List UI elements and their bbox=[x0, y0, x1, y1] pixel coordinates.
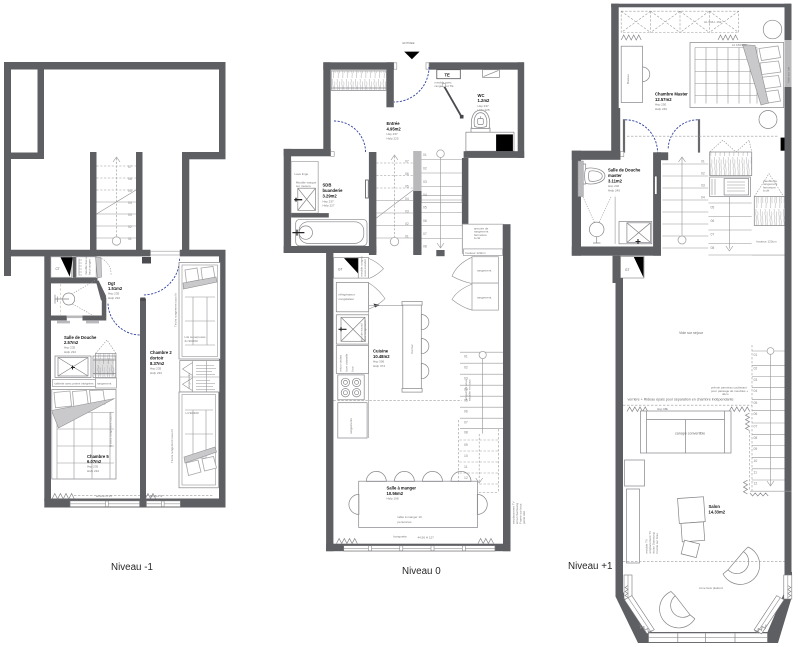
svg-text:07: 07 bbox=[128, 165, 132, 169]
svg-text:rangement: rangement bbox=[97, 382, 112, 386]
svg-text:02: 02 bbox=[423, 167, 427, 171]
svg-text:07: 07 bbox=[464, 421, 468, 425]
svg-text:master: master bbox=[608, 173, 622, 178]
svg-text:12: 12 bbox=[754, 482, 758, 486]
svg-text:02: 02 bbox=[464, 366, 468, 370]
svg-text:Hsp 98k: Hsp 98k bbox=[657, 407, 669, 411]
svg-text:1.2m2: 1.2m2 bbox=[478, 98, 491, 103]
svg-text:11: 11 bbox=[464, 465, 468, 469]
svg-text:Vide sur rue: Vide sur rue bbox=[787, 67, 791, 83]
svg-text:rangement: rangement bbox=[477, 269, 492, 273]
svg-text:05: 05 bbox=[128, 189, 132, 193]
svg-text:verrière + Rideau épais pour s: verrière + Rideau épais pour séparation … bbox=[628, 398, 734, 402]
svg-text:petite télé: petite télé bbox=[522, 511, 526, 524]
svg-text:14.33m2: 14.33m2 bbox=[709, 509, 726, 514]
svg-text:Hsfp 198: Hsfp 198 bbox=[387, 497, 399, 501]
svg-text:Niveau -1: Niveau -1 bbox=[111, 562, 153, 573]
svg-text:déco: déco bbox=[722, 392, 729, 396]
svg-text:hauteur 120cm: hauteur 120cm bbox=[466, 251, 487, 255]
svg-text:Hsfp 240: Hsfp 240 bbox=[655, 107, 667, 111]
svg-text:06: 06 bbox=[754, 412, 758, 416]
svg-text:lave vaisselle: lave vaisselle bbox=[345, 353, 349, 371]
svg-text:8.37m2: 8.37m2 bbox=[150, 361, 165, 366]
svg-text:GT: GT bbox=[625, 268, 629, 272]
svg-text:TE: TE bbox=[445, 73, 451, 78]
svg-text:06: 06 bbox=[128, 177, 132, 181]
svg-text:table à manger 10: table à manger 10 bbox=[398, 515, 423, 519]
svg-text:personnes: personnes bbox=[398, 520, 413, 524]
svg-text:01: 01 bbox=[701, 160, 705, 164]
svg-text:07: 07 bbox=[754, 425, 758, 429]
svg-text:01: 01 bbox=[754, 353, 758, 357]
svg-text:11: 11 bbox=[754, 471, 758, 475]
svg-text:Hsfp 227: Hsfp 227 bbox=[323, 204, 335, 208]
svg-text:Tiroirs rangement sous lit: Tiroirs rangement sous lit bbox=[174, 293, 178, 327]
svg-text:lit avec rangement sous lit: lit avec rangement sous lit bbox=[109, 412, 113, 447]
svg-text:zone faux plafond: zone faux plafond bbox=[699, 586, 723, 590]
svg-text:haut rangmt: haut rangmt bbox=[88, 259, 92, 275]
svg-text:06: 06 bbox=[464, 410, 468, 414]
svg-text:Hsfp 232: Hsfp 232 bbox=[108, 296, 120, 300]
svg-text:02: 02 bbox=[405, 222, 409, 226]
svg-text:2.57m2: 2.57m2 bbox=[64, 340, 79, 345]
svg-text:05: 05 bbox=[711, 206, 715, 210]
svg-text:03: 03 bbox=[405, 210, 409, 214]
svg-text:03: 03 bbox=[128, 213, 132, 217]
svg-text:6.07m2: 6.07m2 bbox=[87, 459, 102, 464]
svg-text:10.56m2: 10.56m2 bbox=[387, 491, 404, 496]
svg-text:03: 03 bbox=[701, 184, 705, 188]
svg-text:06: 06 bbox=[405, 172, 409, 176]
svg-text:sous escalier: sous escalier bbox=[363, 259, 367, 277]
svg-text:3.29m2: 3.29m2 bbox=[323, 194, 338, 199]
svg-text:3.11m2: 3.11m2 bbox=[608, 178, 623, 183]
svg-text:Hsfp 374: Hsfp 374 bbox=[373, 364, 385, 368]
svg-text:A6 dev lit: A6 dev lit bbox=[150, 494, 163, 498]
svg-text:02: 02 bbox=[701, 172, 705, 176]
svg-text:rangements: rangements bbox=[349, 418, 353, 434]
svg-text:banquette: banquette bbox=[394, 535, 408, 539]
svg-text:AL 93/H. 162: AL 93/H. 162 bbox=[704, 20, 722, 24]
svg-text:Entrée: Entrée bbox=[387, 121, 401, 126]
svg-text:Cuisine: Cuisine bbox=[373, 349, 389, 354]
svg-text:2x 90/200: 2x 90/200 bbox=[185, 339, 199, 343]
svg-text:canapé convertible: canapé convertible bbox=[675, 432, 705, 436]
svg-text:04: 04 bbox=[754, 389, 758, 393]
svg-text:02: 02 bbox=[754, 367, 758, 371]
svg-text:Chambre Master: Chambre Master bbox=[655, 92, 688, 97]
svg-text:06: 06 bbox=[711, 219, 715, 223]
svg-text:01: 01 bbox=[464, 355, 468, 359]
svg-text:Chambre 2: Chambre 2 bbox=[150, 350, 172, 355]
svg-text:10.48m2: 10.48m2 bbox=[373, 354, 390, 359]
svg-text:04: 04 bbox=[128, 201, 132, 205]
svg-text:rangements: rangements bbox=[187, 373, 191, 389]
svg-text:four: four bbox=[351, 366, 355, 371]
svg-text:08: 08 bbox=[423, 245, 427, 249]
svg-text:07: 07 bbox=[423, 232, 427, 236]
svg-text:Niveau +1: Niveau +1 bbox=[568, 561, 612, 572]
svg-text:Salle à manger: Salle à manger bbox=[387, 486, 417, 491]
svg-text:1.51m2: 1.51m2 bbox=[108, 286, 123, 291]
svg-text:07: 07 bbox=[405, 160, 409, 164]
svg-text:05: 05 bbox=[423, 206, 427, 210]
svg-text:Lit 160/200: Lit 160/200 bbox=[732, 43, 747, 47]
svg-text:tablette avec prises intégrées: tablette avec prises intégrées bbox=[55, 381, 95, 385]
svg-text:Hsfp 232: Hsfp 232 bbox=[87, 469, 99, 473]
svg-text:hauteur 120cm: hauteur 120cm bbox=[757, 240, 778, 244]
svg-text:îlot bar: îlot bar bbox=[410, 344, 414, 354]
svg-text:08: 08 bbox=[464, 431, 468, 435]
svg-text:10: 10 bbox=[754, 459, 758, 463]
svg-text:GT: GT bbox=[338, 268, 342, 272]
svg-text:à clé: à clé bbox=[763, 189, 770, 193]
svg-text:05: 05 bbox=[754, 401, 758, 405]
svg-text:01: 01 bbox=[128, 237, 132, 241]
svg-text:Niveau 0: Niveau 0 bbox=[402, 566, 441, 577]
svg-text:12.57m2: 12.57m2 bbox=[655, 97, 672, 102]
svg-text:Lit 90/200: Lit 90/200 bbox=[186, 411, 200, 415]
svg-text:03: 03 bbox=[423, 180, 427, 184]
svg-text:CT: CT bbox=[56, 267, 60, 271]
svg-text:12: 12 bbox=[464, 476, 468, 480]
svg-text:congélateur: congélateur bbox=[339, 297, 355, 301]
svg-text:05: 05 bbox=[405, 185, 409, 189]
svg-text:08: 08 bbox=[754, 436, 758, 440]
svg-text:à clé: à clé bbox=[474, 236, 481, 240]
svg-text:04: 04 bbox=[701, 196, 705, 200]
svg-text:10: 10 bbox=[464, 454, 468, 458]
svg-text:04: 04 bbox=[405, 197, 409, 201]
svg-text:Salon: Salon bbox=[709, 504, 721, 509]
svg-text:Tiroirs rangement sous lit: Tiroirs rangement sous lit bbox=[170, 429, 174, 463]
svg-text:Lave linge: Lave linge bbox=[295, 172, 309, 176]
svg-text:escalier en sous: escalier en sous bbox=[468, 379, 472, 401]
svg-text:01: 01 bbox=[423, 153, 427, 157]
svg-text:4.95m2: 4.95m2 bbox=[387, 126, 402, 131]
svg-text:Hsfp 245: Hsfp 245 bbox=[608, 188, 620, 192]
svg-text:avec rangement: avec rangement bbox=[363, 320, 367, 342]
svg-text:arrière lit 15: arrière lit 15 bbox=[96, 494, 112, 498]
svg-text:03: 03 bbox=[754, 378, 758, 382]
svg-text:06: 06 bbox=[423, 219, 427, 223]
svg-text:02: 02 bbox=[128, 225, 132, 229]
svg-text:Frame sur bras: Frame sur bras bbox=[655, 533, 659, 554]
svg-text:01: 01 bbox=[405, 235, 409, 239]
svg-text:09: 09 bbox=[754, 447, 758, 451]
svg-text:Hsfp 232: Hsfp 232 bbox=[150, 371, 162, 375]
svg-text:dortoir: dortoir bbox=[150, 355, 164, 360]
svg-text:Salle de Douche: Salle de Douche bbox=[608, 168, 641, 173]
svg-text:Bureau: Bureau bbox=[626, 74, 630, 84]
svg-text:micro-ondes: micro-ondes bbox=[339, 354, 343, 371]
svg-text:buanderie: buanderie bbox=[323, 188, 344, 193]
svg-text:rangement: rangement bbox=[477, 296, 492, 300]
svg-text:44.56 H 127: 44.56 H 127 bbox=[418, 536, 435, 540]
svg-text:sur mesure: sur mesure bbox=[296, 184, 311, 188]
svg-text:SDB: SDB bbox=[323, 183, 332, 188]
svg-text:Hsfp 225: Hsfp 225 bbox=[387, 136, 399, 140]
svg-text:Vide sur séjour: Vide sur séjour bbox=[679, 331, 704, 335]
svg-text:08: 08 bbox=[711, 246, 715, 250]
svg-text:09: 09 bbox=[464, 443, 468, 447]
svg-text:Hsfp 232: Hsfp 232 bbox=[64, 350, 76, 354]
svg-text:pour passage de meubles +: pour passage de meubles + bbox=[711, 389, 748, 393]
svg-text:ENTREE: ENTREE bbox=[403, 41, 415, 45]
svg-text:07: 07 bbox=[711, 233, 715, 237]
svg-text:04: 04 bbox=[423, 193, 427, 197]
